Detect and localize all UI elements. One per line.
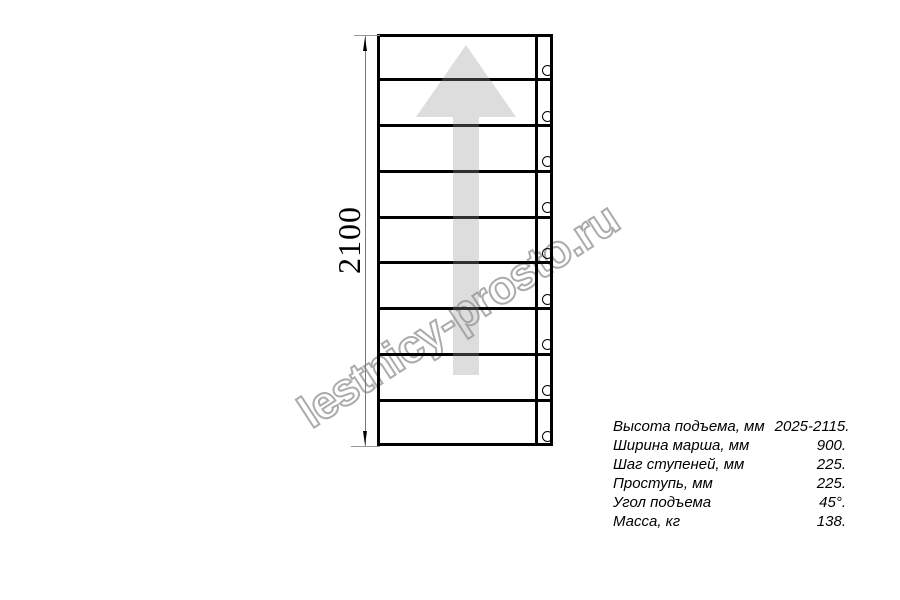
spec-row: Угол подъема 45°. bbox=[613, 493, 846, 512]
stringer-line bbox=[535, 34, 538, 446]
dimension-arrowhead-top-icon bbox=[363, 37, 367, 51]
bolt-circle bbox=[542, 65, 553, 76]
spec-row: Ширина марша, мм 900. bbox=[613, 436, 846, 455]
spec-value: 45°. bbox=[809, 493, 846, 512]
bolt-circle bbox=[542, 339, 553, 350]
spec-label: Масса, кг bbox=[613, 512, 680, 531]
spec-row: Масса, кг 138. bbox=[613, 512, 846, 531]
spec-value: 138. bbox=[807, 512, 846, 531]
bolt-circle bbox=[542, 111, 553, 122]
spec-label: Проступь, мм bbox=[613, 474, 713, 493]
spec-label: Угол подъема bbox=[613, 493, 711, 512]
spec-row: Шаг ступеней, мм 225. bbox=[613, 455, 846, 474]
bolt-circle bbox=[542, 385, 553, 396]
spec-label: Ширина марша, мм bbox=[613, 436, 749, 455]
dimension-extension-bottom bbox=[351, 446, 380, 447]
dimension-label: 2100 bbox=[334, 200, 364, 280]
bolt-circle bbox=[542, 431, 553, 442]
bolt-circle bbox=[542, 202, 553, 213]
spec-row: Высота подъема, мм 2025-2115. bbox=[613, 417, 846, 436]
dimension-extension-top bbox=[354, 35, 380, 36]
spec-label: Высота подъема, мм bbox=[613, 417, 765, 436]
spec-row: Проступь, мм 225. bbox=[613, 474, 846, 493]
spec-value: 900. bbox=[807, 436, 846, 455]
dimension-arrowhead-bottom-icon bbox=[363, 431, 367, 445]
spec-value: 225. bbox=[807, 455, 846, 474]
step-line bbox=[377, 399, 553, 402]
spec-value: 2025-2115. bbox=[765, 417, 850, 436]
specs-table: Высота подъема, мм 2025-2115. Ширина мар… bbox=[613, 417, 846, 531]
spec-value: 225. bbox=[807, 474, 846, 493]
drawing-canvas: lestnicy-prosto.ru 2100 Высота подъема, … bbox=[0, 0, 900, 600]
spec-label: Шаг ступеней, мм bbox=[613, 455, 744, 474]
bolt-circle bbox=[542, 294, 553, 305]
bolt-circle bbox=[542, 248, 553, 259]
bolt-circle bbox=[542, 156, 553, 167]
